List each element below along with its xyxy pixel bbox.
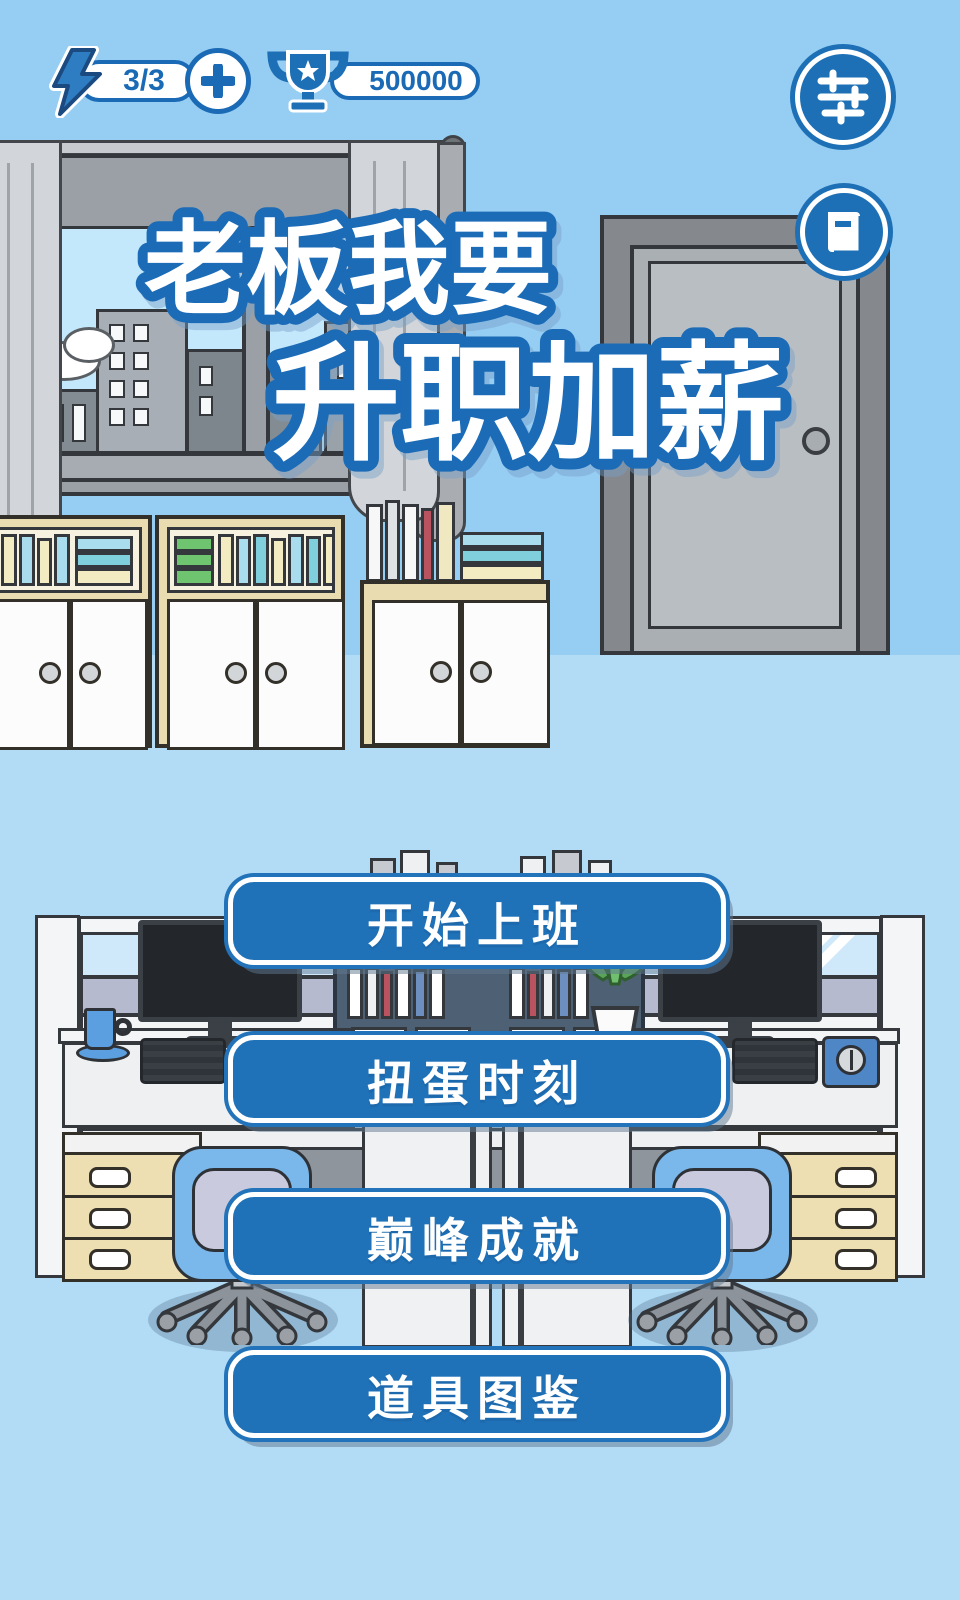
guide-button[interactable]	[800, 188, 888, 276]
lightning-icon	[42, 46, 116, 118]
add-energy-button[interactable]	[190, 53, 246, 109]
keyboard-left	[140, 1038, 226, 1084]
cabinet-door	[70, 599, 148, 750]
cabinet-door	[256, 599, 345, 750]
game-title: 老板我要 升职加薪	[80, 180, 840, 500]
item-catalog-button[interactable]: 道具图鉴	[228, 1350, 726, 1438]
gacha-label: 扭蛋时刻	[367, 1045, 587, 1114]
cabinet-door	[461, 600, 550, 746]
cabinet-left	[0, 515, 152, 748]
settings-button[interactable]	[795, 49, 891, 145]
coffee-cup	[84, 1008, 116, 1050]
cabinet-middle	[155, 515, 345, 748]
keyboard-right	[732, 1038, 818, 1084]
cabinet-door	[167, 599, 256, 750]
trophy-icon	[262, 46, 354, 118]
trophy-value: 500000	[369, 65, 462, 97]
start-work-label: 开始上班	[367, 887, 587, 956]
energy-value: 3/3	[123, 64, 165, 98]
start-work-button[interactable]: 开始上班	[228, 877, 726, 965]
cabinet-door	[0, 599, 70, 750]
achievements-label: 巅峰成就	[367, 1202, 587, 1271]
achievements-button[interactable]: 巅峰成就	[228, 1192, 726, 1280]
coffee-cup-handle	[114, 1018, 132, 1036]
cabinet-door	[372, 600, 461, 746]
game-title-line1: 老板我要	[144, 213, 552, 327]
sliders-icon	[815, 69, 871, 125]
mouse	[836, 1045, 866, 1075]
book-icon	[820, 208, 868, 256]
game-title-screen: 老板我要 升职加薪 3/3 500000	[0, 0, 960, 1600]
sideboard-books	[360, 498, 550, 584]
gacha-button[interactable]: 扭蛋时刻	[228, 1035, 726, 1123]
game-title-line2: 升职加薪	[272, 333, 784, 476]
plus-icon	[201, 64, 235, 98]
cabinet-right	[360, 580, 550, 748]
item-catalog-label: 道具图鉴	[367, 1360, 587, 1429]
